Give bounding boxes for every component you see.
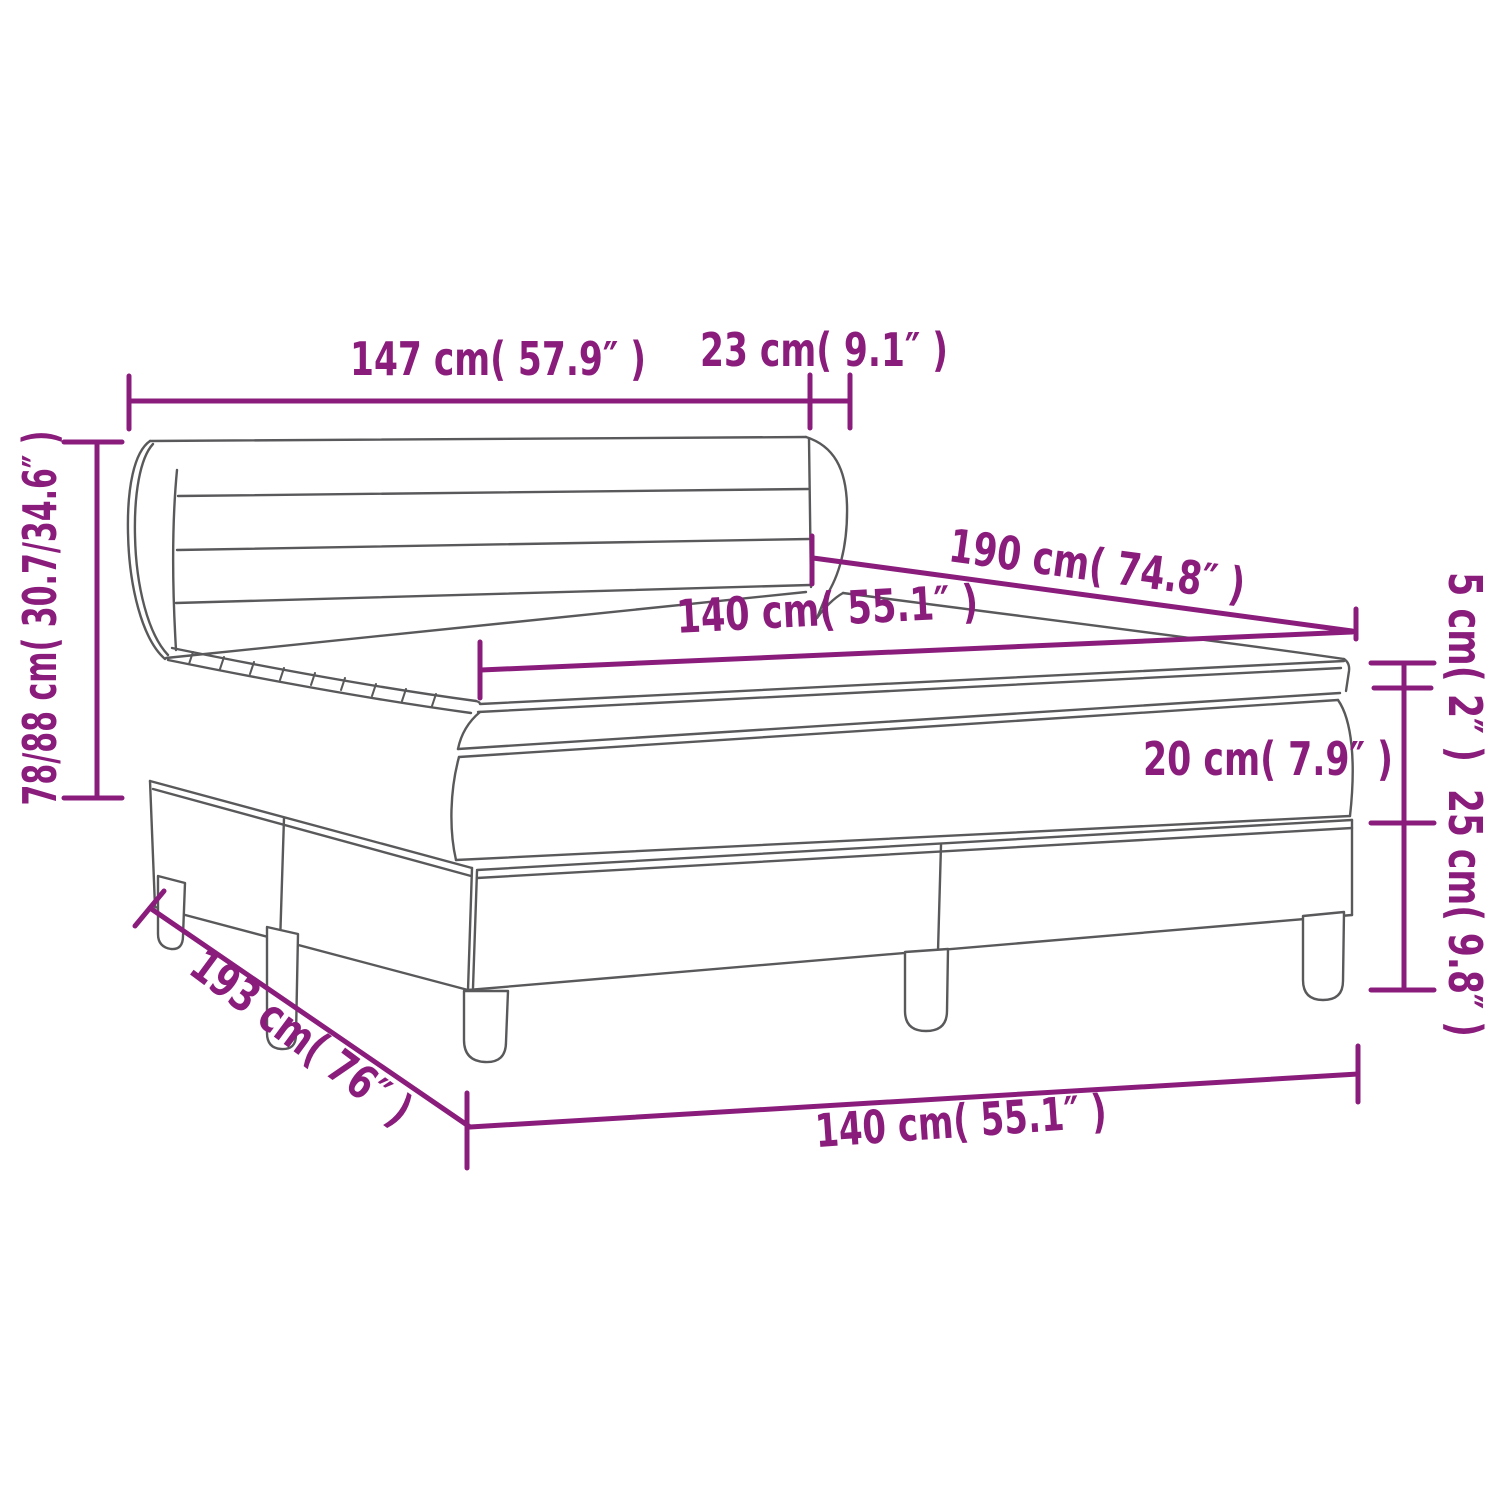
topper-right-corner — [1344, 659, 1349, 691]
base-left-top-edge-inner — [153, 789, 471, 876]
bed-dimension-diagram-page: 147 cm( 57.9″ ) 23 cm( 9.1″ ) 78/88 cm( … — [0, 0, 1500, 1500]
base-left-back-edge — [150, 781, 155, 907]
headboard-seam-2 — [177, 539, 809, 550]
leg-back-left — [158, 876, 185, 949]
label-headboard-depth: 23 cm( 9.1″ ) — [700, 323, 948, 377]
base-corner-edge-inner — [473, 871, 477, 988]
leg-front-right — [1303, 912, 1344, 1000]
bed-dimension-diagram: 147 cm( 57.9″ ) 23 cm( 9.1″ ) 78/88 cm( … — [0, 0, 1500, 1500]
headboard-left-wing-inner — [173, 470, 177, 650]
topper-front-top-edge — [476, 661, 1344, 704]
topper-bottom-seam — [458, 712, 480, 749]
base-left-top-edge — [150, 781, 472, 868]
headboard-seam-1 — [178, 489, 808, 496]
leg-front-left — [464, 991, 508, 1062]
label-headboard-width: 147 cm( 57.9″ ) — [350, 332, 646, 386]
dimension-labels: 147 cm( 57.9″ ) 23 cm( 9.1″ ) 78/88 cm( … — [13, 323, 1492, 1158]
label-base-height: 25 cm( 9.8″ ) — [1438, 789, 1492, 1037]
label-mattress-height: 20 cm( 7.9″ ) — [1143, 732, 1393, 786]
topper-piping-hashes — [189, 652, 436, 706]
headboard-left-wing-contour — [135, 444, 168, 655]
label-total-height-range: 78/88 cm( 30.7/34.6″ ) — [13, 431, 67, 806]
dimension-height-stack — [1371, 663, 1434, 990]
topper-front-top-edge-inner — [478, 668, 1341, 712]
headboard-left-wing-outer — [128, 441, 165, 659]
base-front-seam — [938, 845, 941, 951]
base-corner-edge — [468, 868, 472, 990]
label-mattress-width-top: 140 cm( 55.1″ ) — [675, 574, 979, 644]
mattress-left-edge — [451, 757, 459, 860]
topper-left-piping-bottom — [168, 660, 471, 713]
base-front-top-edge — [477, 820, 1352, 870]
label-base-width-bottom: 140 cm( 55.1″ ) — [813, 1084, 1108, 1158]
dimension-total-height — [64, 442, 122, 798]
leg-front-middle — [905, 949, 948, 1031]
base-left-seam — [280, 818, 284, 944]
headboard-top-edge — [150, 437, 806, 441]
base-box — [150, 781, 1352, 990]
topper-left-piping-top — [172, 648, 476, 701]
label-topper-height: 5 cm( 2″ ) — [1438, 572, 1492, 762]
